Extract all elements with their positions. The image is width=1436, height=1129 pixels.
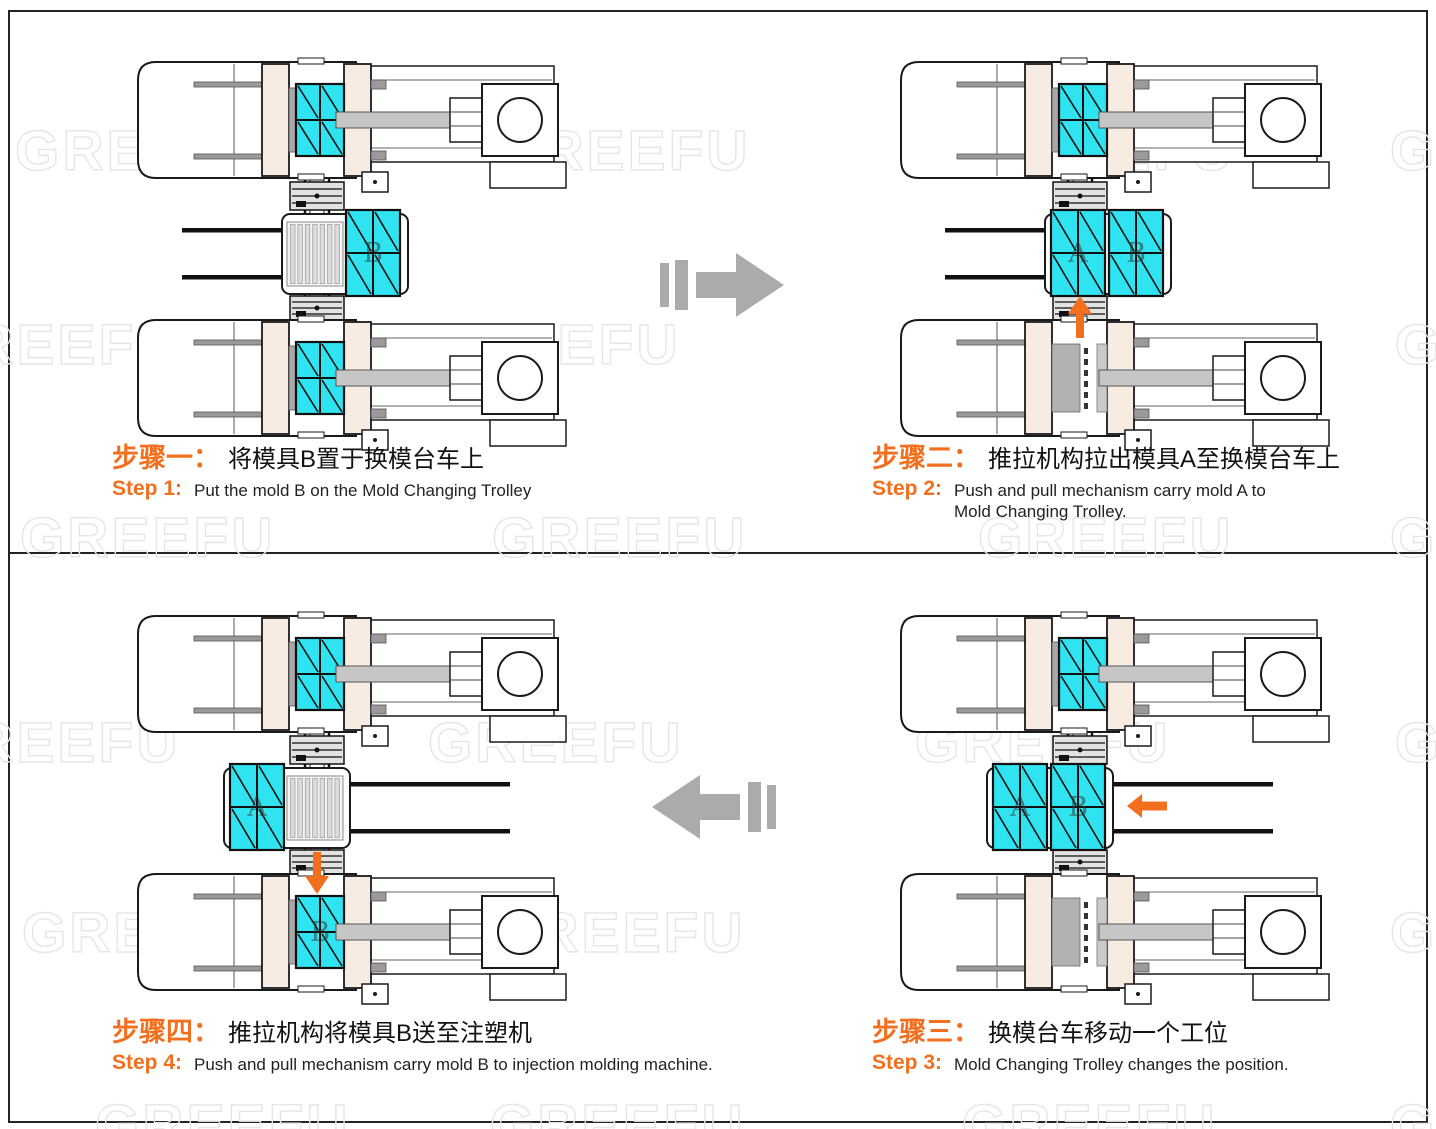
step-2-zh-label: 步骤二： (872, 436, 980, 475)
step-3-diagram: AB (878, 606, 1436, 1006)
step-2-title-en: Step 2: Push and pull mechanism carry mo… (872, 477, 1340, 523)
step-1-zh-label: 步骤一： (112, 436, 220, 475)
step-4-en-text: Push and pull mechanism carry mold B to … (194, 1051, 713, 1075)
step-1-en-label: Step 1: (112, 477, 182, 501)
svg-text:B: B (363, 238, 383, 269)
step-4-title-en: Step 4: Push and pull mechanism carry mo… (112, 1051, 713, 1075)
mold-change-process-sheet: GREEFUGREEFUGREEFUGREEFUGREEFUGREEFUGREE… (0, 0, 1436, 1129)
step-3-en-label: Step 3: (872, 1051, 942, 1075)
svg-text:B: B (310, 917, 330, 948)
panel-divider-line (8, 552, 1428, 554)
step-1-zh-text: 将模具B置于换模台车上 (228, 439, 484, 474)
svg-text:B: B (1126, 238, 1146, 269)
step-2-title-zh: 步骤二： 推拉机构拉出模具A至换模台车上 (872, 436, 1340, 475)
step-1-title-en: Step 1: Put the mold B on the Mold Chang… (112, 477, 531, 501)
step-3-en-text: Mold Changing Trolley changes the positi… (954, 1051, 1289, 1075)
step-2-zh-text: 推拉机构拉出模具A至换模台车上 (988, 439, 1340, 474)
flow-arrow-right-icon (660, 250, 788, 320)
svg-text:A: A (246, 792, 267, 823)
step-3-title-en: Step 3: Mold Changing Trolley changes th… (872, 1051, 1289, 1075)
step-4-title-zh: 步骤四： 推拉机构将模具B送至注塑机 (112, 1010, 713, 1049)
step-1-diagram: B (60, 52, 660, 452)
step-2-diagram: AB (878, 52, 1436, 452)
step-1-en-text: Put the mold B on the Mold Changing Trol… (194, 477, 531, 501)
step-2-en-text: Push and pull mechanism carry mold A to … (954, 477, 1266, 523)
svg-text:A: A (1009, 792, 1030, 823)
step-1-caption: 步骤一： 将模具B置于换模台车上 Step 1: Put the mold B … (112, 436, 531, 501)
step-3-title-zh: 步骤三： 换模台车移动一个工位 (872, 1010, 1289, 1049)
step-3-zh-text: 换模台车移动一个工位 (988, 1013, 1228, 1048)
svg-text:B: B (1068, 792, 1088, 823)
flow-arrow-left-icon (648, 772, 776, 842)
step-4-caption: 步骤四： 推拉机构将模具B送至注塑机 Step 4: Push and pull… (112, 1010, 713, 1075)
step-3-zh-label: 步骤三： (872, 1010, 980, 1049)
svg-text:A: A (1067, 238, 1088, 269)
step-2-en-label: Step 2: (872, 477, 942, 501)
step-2-caption: 步骤二： 推拉机构拉出模具A至换模台车上 Step 2: Push and pu… (872, 436, 1340, 523)
step-1-title-zh: 步骤一： 将模具B置于换模台车上 (112, 436, 531, 475)
step-3-caption: 步骤三： 换模台车移动一个工位 Step 3: Mold Changing Tr… (872, 1010, 1289, 1075)
step-4-zh-text: 推拉机构将模具B送至注塑机 (228, 1013, 532, 1048)
step-4-zh-label: 步骤四： (112, 1010, 220, 1049)
step-4-diagram: BA (60, 606, 660, 1006)
step-4-en-label: Step 4: (112, 1051, 182, 1075)
